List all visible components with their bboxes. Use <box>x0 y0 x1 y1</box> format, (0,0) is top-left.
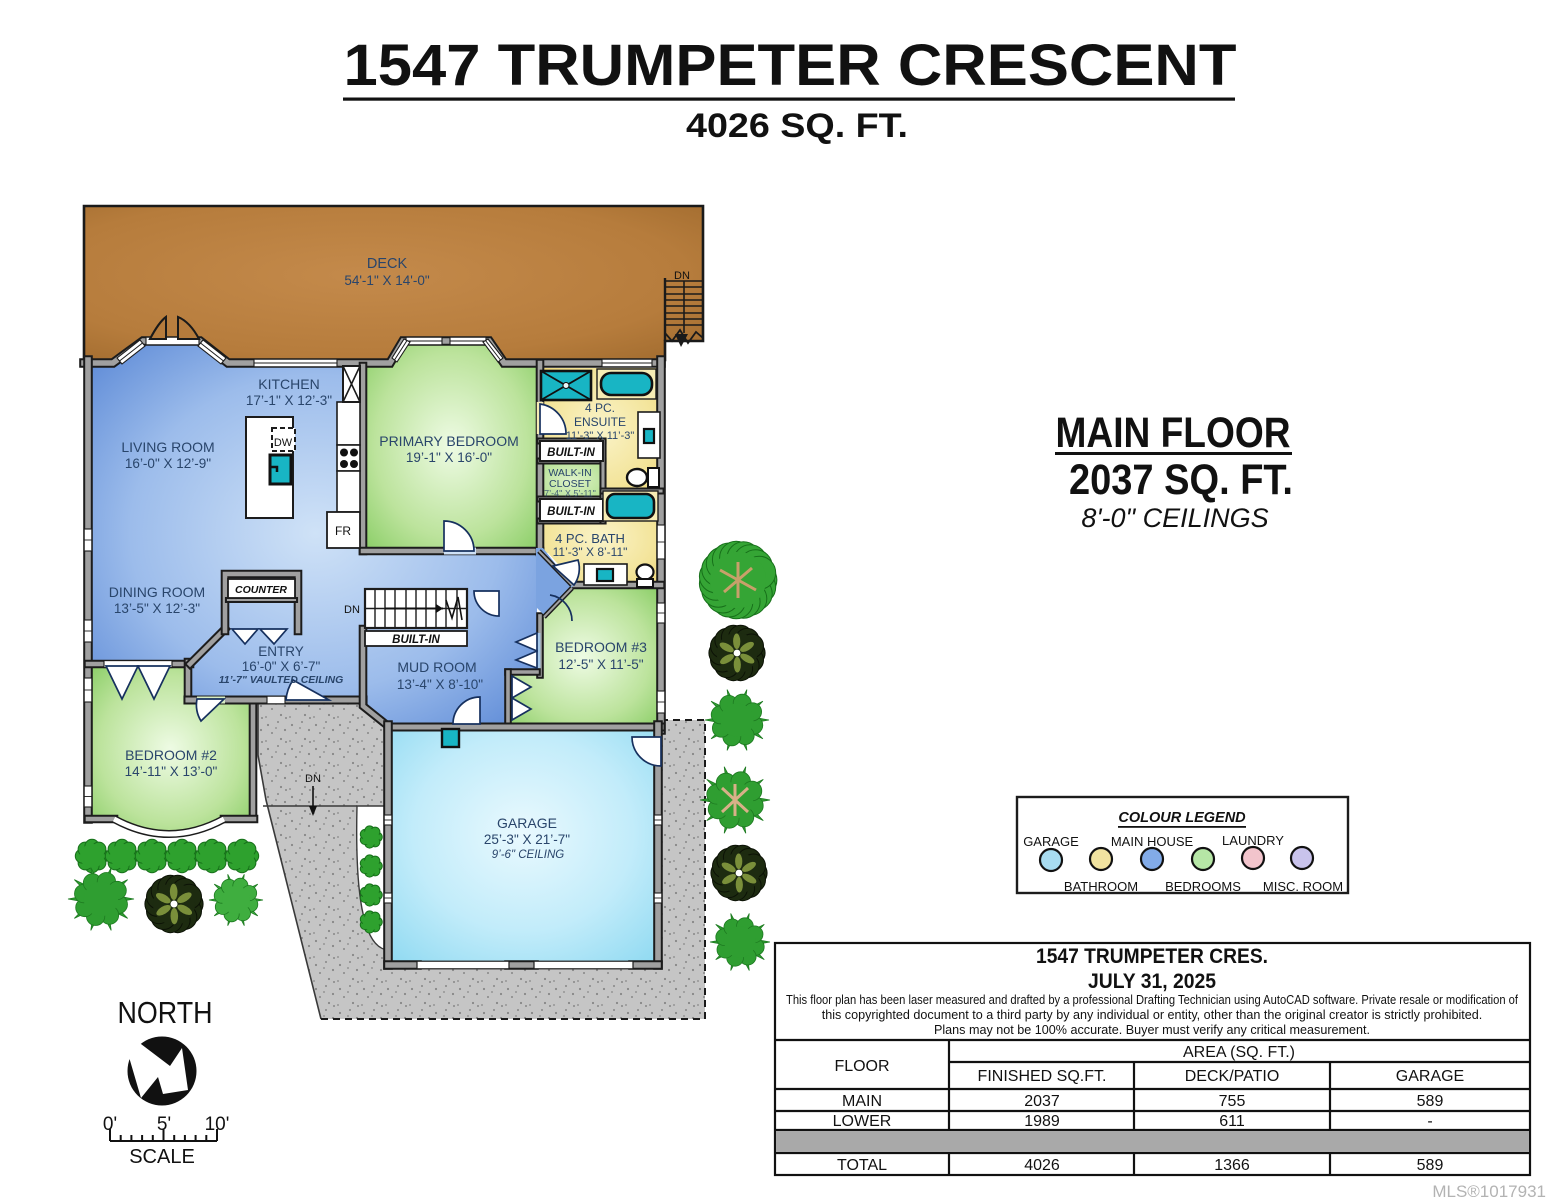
svg-text:BEDROOM #3: BEDROOM #3 <box>555 639 647 655</box>
svg-text:9’-6" CEILING: 9’-6" CEILING <box>492 849 565 861</box>
svg-text:SCALE: SCALE <box>129 1146 195 1168</box>
svg-text:KITCHEN: KITCHEN <box>258 376 319 392</box>
svg-text:2037 SQ. FT.: 2037 SQ. FT. <box>1069 456 1293 504</box>
svg-text:0': 0' <box>103 1114 117 1135</box>
svg-text:DECK/PATIO: DECK/PATIO <box>1185 1068 1280 1085</box>
svg-text:1547 TRUMPETER CRESCENT: 1547 TRUMPETER CRESCENT <box>344 33 1237 98</box>
svg-text:14’-11" X 13’-0": 14’-11" X 13’-0" <box>125 764 218 779</box>
svg-text:16’-0" X 12’-9": 16’-0" X 12’-9" <box>125 456 211 471</box>
svg-text:1989: 1989 <box>1024 1113 1060 1130</box>
svg-text:1366: 1366 <box>1214 1157 1250 1174</box>
svg-text:DN: DN <box>305 773 321 785</box>
svg-text:GARAGE: GARAGE <box>1023 834 1079 849</box>
svg-text:ENSUITE: ENSUITE <box>574 415 626 429</box>
svg-text:MUD ROOM: MUD ROOM <box>397 659 476 675</box>
svg-text:LAUNDRY: LAUNDRY <box>1222 833 1284 848</box>
svg-text:FINISHED SQ.FT.: FINISHED SQ.FT. <box>978 1068 1107 1085</box>
svg-text:FR: FR <box>335 524 351 538</box>
svg-text:BEDROOMS: BEDROOMS <box>1165 879 1241 894</box>
svg-text:7’-4" X 5’-11": 7’-4" X 5’-11" <box>544 489 596 499</box>
svg-text:DINING ROOM: DINING ROOM <box>109 584 205 600</box>
svg-text:589: 589 <box>1417 1157 1444 1174</box>
svg-text:MAIN FLOOR: MAIN FLOOR <box>1056 409 1291 457</box>
svg-text:DECK: DECK <box>367 256 408 272</box>
svg-text:4 PC. BATH: 4 PC. BATH <box>555 531 625 546</box>
svg-text:NORTH: NORTH <box>118 995 213 1030</box>
svg-text:13’-5" X 12’-3": 13’-5" X 12’-3" <box>114 601 200 616</box>
svg-text:DW: DW <box>274 437 293 449</box>
svg-text:GARAGE: GARAGE <box>497 815 557 831</box>
svg-text:LIVING ROOM: LIVING ROOM <box>121 439 214 455</box>
svg-text:AREA (SQ. FT.): AREA (SQ. FT.) <box>1183 1044 1295 1061</box>
svg-text:GARAGE: GARAGE <box>1396 1068 1464 1085</box>
svg-text:MAIN: MAIN <box>842 1093 882 1110</box>
svg-text:BEDROOM #2: BEDROOM #2 <box>125 747 217 763</box>
svg-text:611: 611 <box>1219 1113 1245 1130</box>
svg-text:COUNTER: COUNTER <box>235 584 287 596</box>
svg-text:TOTAL: TOTAL <box>837 1157 887 1174</box>
svg-text:DN: DN <box>344 604 360 616</box>
svg-text:PRIMARY BEDROOM: PRIMARY BEDROOM <box>379 433 519 449</box>
svg-text:MISC. ROOM: MISC. ROOM <box>1263 879 1343 894</box>
svg-text:16’-0" X 6’-7": 16’-0" X 6’-7" <box>242 659 321 674</box>
svg-text:2037: 2037 <box>1024 1093 1060 1110</box>
svg-text:8'-0" CEILINGS: 8'-0" CEILINGS <box>1081 503 1268 533</box>
svg-text:MAIN HOUSE: MAIN HOUSE <box>1111 834 1194 849</box>
svg-text:Plans may not be 100% accurate: Plans may not be 100% accurate. Buyer mu… <box>934 1023 1370 1037</box>
svg-text:19’-1" X 16’-0": 19’-1" X 16’-0" <box>406 450 492 465</box>
svg-text:12’-5" X 11’-5": 12’-5" X 11’-5" <box>558 657 643 672</box>
svg-text:4 PC.: 4 PC. <box>585 401 615 415</box>
svg-text:25’-3" X 21’-7": 25’-3" X 21’-7" <box>484 832 570 847</box>
svg-text:5': 5' <box>157 1114 171 1135</box>
svg-text:BUILT-IN: BUILT-IN <box>547 506 595 518</box>
svg-text:17’-1" X 12’-3": 17’-1" X 12’-3" <box>246 393 332 408</box>
svg-text:This floor plan has been laser: This floor plan has been laser measured … <box>786 993 1518 1007</box>
svg-text:54'-1" X 14'-0": 54'-1" X 14'-0" <box>344 273 429 288</box>
svg-text:-: - <box>1427 1113 1432 1130</box>
svg-text:BUILT-IN: BUILT-IN <box>392 634 440 646</box>
svg-text:FLOOR: FLOOR <box>834 1058 889 1075</box>
svg-text:11’-3" X 8’-11": 11’-3" X 8’-11" <box>553 545 628 559</box>
svg-text:ENTRY: ENTRY <box>258 644 304 659</box>
svg-text:4026: 4026 <box>1024 1157 1060 1174</box>
svg-text:JULY 31, 2025: JULY 31, 2025 <box>1088 970 1216 993</box>
svg-text:11’-3" X 11’-3": 11’-3" X 11’-3" <box>566 430 635 442</box>
svg-text:4026 SQ. FT.: 4026 SQ. FT. <box>686 107 908 145</box>
svg-text:10': 10' <box>205 1114 230 1135</box>
svg-text:this copyrighted document to a: this copyrighted document to a third par… <box>822 1008 1483 1022</box>
svg-text:11’-7" VAULTED CEILING: 11’-7" VAULTED CEILING <box>219 674 344 686</box>
svg-text:755: 755 <box>1219 1093 1246 1110</box>
svg-text:DN: DN <box>674 270 690 282</box>
svg-text:BATHROOM: BATHROOM <box>1064 879 1138 894</box>
svg-text:1547 TRUMPETER CRES.: 1547 TRUMPETER CRES. <box>1036 945 1268 968</box>
svg-text:COLOUR LEGEND: COLOUR LEGEND <box>1118 810 1246 826</box>
svg-text:589: 589 <box>1417 1093 1444 1110</box>
svg-text:MLS®1017931: MLS®1017931 <box>1432 1182 1546 1200</box>
svg-text:LOWER: LOWER <box>833 1113 892 1130</box>
svg-text:13’-4" X 8’-10": 13’-4" X 8’-10" <box>397 677 483 692</box>
svg-text:BUILT-IN: BUILT-IN <box>547 447 595 459</box>
